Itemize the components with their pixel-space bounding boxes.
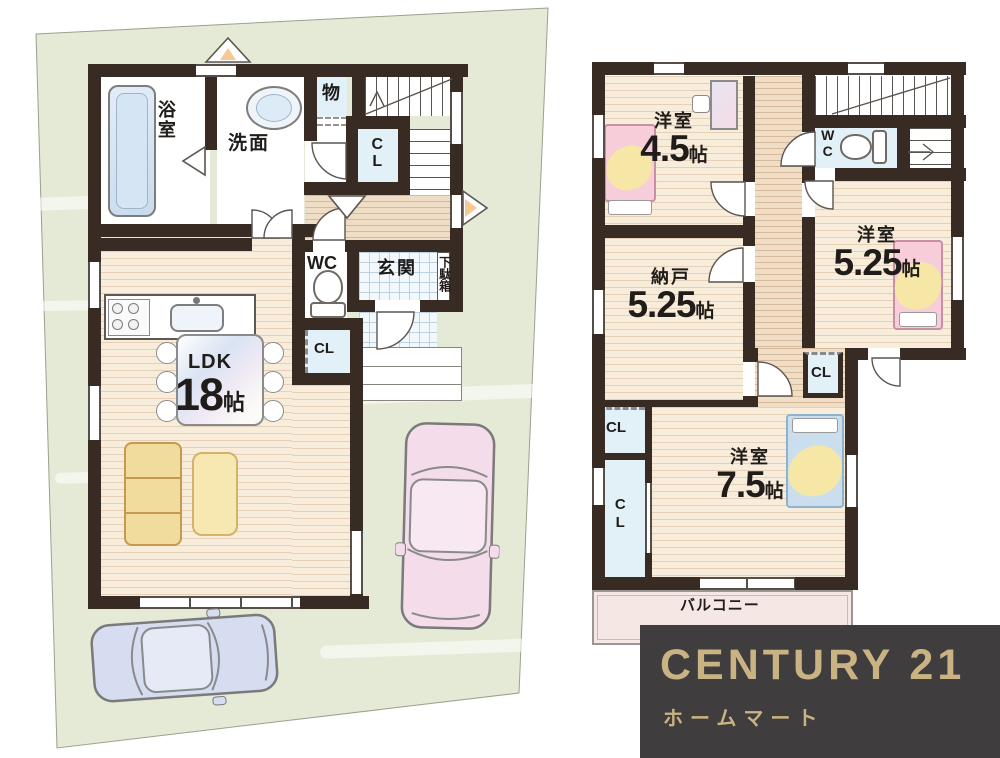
site-texture-streak — [320, 638, 540, 659]
brand-name: CENTURY 21 — [660, 641, 965, 690]
entrance-step — [358, 384, 462, 401]
vent-marker-up-inner-icon — [220, 48, 236, 60]
bedroom-7_5-unit: 帖 — [765, 481, 784, 502]
window — [592, 290, 605, 334]
window — [845, 455, 858, 507]
wall-segment — [598, 453, 645, 460]
sofa-ottoman — [192, 452, 238, 536]
wall-segment — [292, 240, 313, 252]
car-mirror — [489, 545, 499, 558]
window — [592, 115, 605, 158]
wall-segment — [292, 318, 350, 330]
wall-segment — [802, 166, 815, 183]
wall-segment — [88, 238, 252, 251]
wall-segment — [592, 400, 758, 407]
wc2-label: WC — [820, 127, 835, 159]
door-gap — [815, 168, 835, 181]
toilet2-tank — [872, 130, 887, 164]
storeroom-label: 納戸 5.25帖 — [612, 268, 730, 323]
window — [88, 386, 101, 440]
stove-burner-icon — [128, 319, 139, 330]
wall-segment — [833, 168, 966, 181]
wc1-label: WC — [307, 254, 337, 273]
sofa — [124, 442, 182, 546]
stairs-upper-run — [365, 77, 450, 116]
car-mirror — [207, 609, 221, 618]
wall-segment — [304, 64, 317, 141]
bedroom-7_5-label: 洋室 7.5帖 — [690, 448, 810, 503]
storeroom-unit: 帖 — [696, 301, 715, 322]
stove-burner-icon — [128, 303, 139, 314]
car-cabin — [141, 624, 213, 693]
wall-segment — [592, 62, 966, 75]
living-closet-label: CL — [314, 341, 334, 357]
car-blue — [85, 603, 286, 714]
wall-segment — [88, 64, 101, 609]
porch-tile — [359, 312, 437, 347]
vent-marker-up-icon — [206, 38, 250, 62]
desk-chair — [692, 95, 710, 113]
landing-notch — [858, 360, 902, 398]
stove-burner-icon — [112, 303, 123, 314]
wall-segment — [743, 282, 755, 348]
stairs2-upper-run — [815, 76, 952, 115]
wall-segment — [951, 62, 964, 360]
wall-segment — [592, 225, 755, 238]
wall-segment — [292, 373, 350, 385]
bathtub-inner — [116, 93, 148, 209]
bed-large-pillow — [792, 418, 838, 433]
wall-segment — [900, 348, 966, 360]
window — [951, 237, 964, 300]
entry-marker-right-icon — [463, 191, 487, 225]
stairs-lower-run — [410, 129, 450, 195]
car-mirror — [395, 543, 405, 556]
ldk-door-opening — [252, 238, 292, 251]
stair-closet-label: CL — [368, 136, 385, 170]
kitchen-sink — [170, 304, 224, 332]
bedroom-5_25-size: 5.25 — [833, 242, 901, 283]
ldk-floor-extension — [292, 385, 350, 596]
window — [848, 62, 884, 75]
bath-label: 浴室 — [156, 100, 175, 140]
closet-c-label: CL — [811, 365, 831, 381]
washroom-label: 洗面 — [228, 134, 270, 154]
bed-mid-footboard — [899, 312, 937, 327]
closet-sliding-door — [645, 483, 652, 553]
bedroom-4_5-label: 洋室 4.5帖 — [628, 112, 720, 167]
toilet-tank — [310, 302, 346, 318]
company-name: ホームマート — [663, 702, 824, 731]
wall-segment — [743, 238, 755, 246]
washbasin-inner — [256, 94, 292, 122]
wall-segment — [420, 300, 463, 312]
door-gap — [375, 300, 420, 312]
balcony-label: バルコニー — [680, 598, 760, 614]
wall-segment — [743, 76, 755, 182]
bed-small-footboard — [608, 200, 652, 215]
car-mirror — [213, 696, 227, 705]
window — [450, 195, 463, 228]
car-cabin — [409, 479, 487, 553]
bedroom-4_5-size: 4.5 — [640, 128, 688, 169]
wall-segment — [345, 240, 463, 252]
floorplan-canvas: 浴室 洗面 物 CL WC 玄関 下駄箱 CL LDK 18帖 洋室 4.5帖 … — [0, 0, 1000, 758]
window — [592, 468, 605, 505]
window — [88, 262, 101, 308]
window — [350, 531, 363, 594]
door-gap — [313, 240, 345, 252]
folding-door-dashes — [317, 117, 347, 126]
ldk-unit: 帖 — [223, 390, 245, 415]
hallway2-floor — [755, 76, 802, 348]
toilet2-bowl — [840, 134, 872, 160]
storeroom-size: 5.25 — [627, 284, 695, 325]
wall-segment — [88, 64, 468, 77]
toilet-bowl — [313, 270, 343, 304]
wall-segment — [292, 233, 305, 385]
ldk-size: 18 — [175, 369, 223, 420]
ldk-label: LDK 18帖 — [150, 352, 270, 417]
wall-segment — [88, 224, 317, 237]
window — [196, 64, 236, 77]
window — [450, 92, 463, 144]
entrance-label: 玄関 — [377, 259, 417, 278]
window — [700, 577, 795, 590]
bedroom-7_5-size: 7.5 — [716, 464, 764, 505]
faucet-icon — [193, 297, 200, 304]
wall-segment — [897, 128, 910, 168]
bedroom-5_25-unit: 帖 — [902, 259, 921, 280]
storage-label: 物 — [322, 84, 340, 103]
wall-segment — [845, 348, 868, 360]
hallway-floor — [305, 195, 450, 240]
wall-segment — [743, 216, 755, 225]
closet-a-label: CL — [606, 420, 626, 436]
wall-segment — [743, 348, 758, 362]
century21-logo: CENTURY 21 ホームマート — [640, 625, 1000, 758]
wall-segment — [815, 115, 966, 128]
entrance-step — [358, 366, 462, 385]
entry-marker-right-inner-icon — [465, 199, 477, 217]
wall-segment — [304, 182, 410, 195]
wall-segment — [743, 396, 758, 407]
bedroom-4_5-unit: 帖 — [689, 145, 708, 166]
stove-burner-icon — [112, 319, 123, 330]
window — [654, 62, 684, 75]
entrance-step — [358, 347, 462, 367]
wall-segment — [802, 217, 815, 348]
wall-segment — [347, 300, 375, 312]
closet-b-label: CL — [612, 496, 628, 532]
shoe-cabinet-label: 下駄箱 — [438, 256, 451, 292]
bedroom-5_25-label: 洋室 5.25帖 — [817, 226, 937, 281]
car-pink — [393, 417, 503, 638]
stairs2-lower-run — [910, 128, 952, 168]
wall-segment — [802, 62, 815, 132]
